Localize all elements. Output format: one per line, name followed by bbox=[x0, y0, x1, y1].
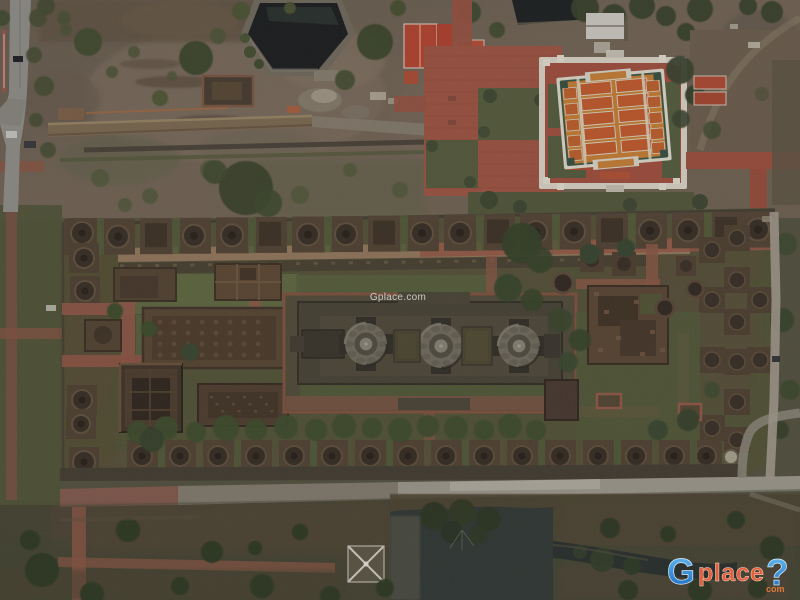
svg-text:com: com bbox=[766, 584, 785, 594]
svg-text:place: place bbox=[698, 559, 764, 587]
svg-text:Gplace.com: Gplace.com bbox=[370, 292, 426, 303]
svg-text:G: G bbox=[667, 551, 695, 592]
